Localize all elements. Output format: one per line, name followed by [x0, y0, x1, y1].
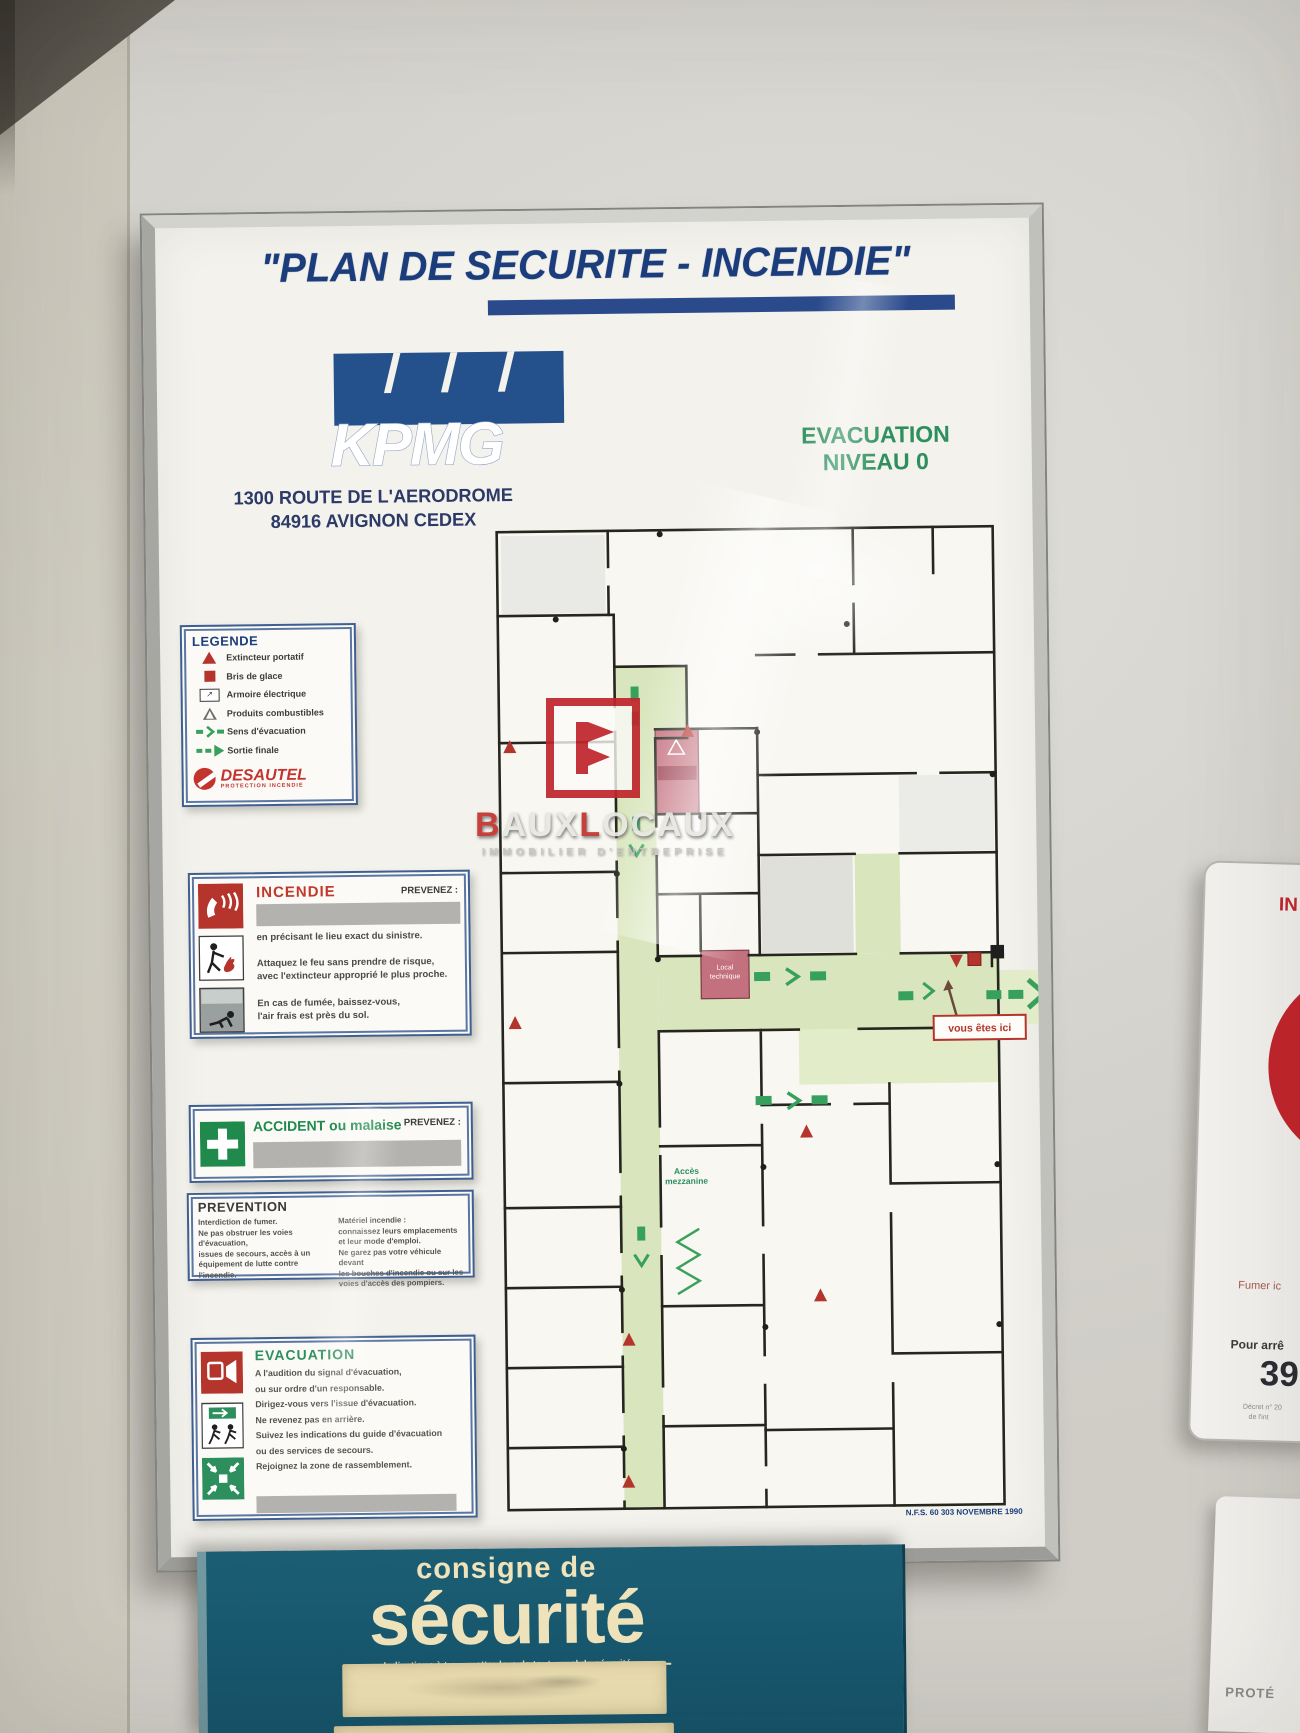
mezzanine-label-2: mezzanine — [665, 1176, 708, 1187]
phone-number-redaction — [256, 902, 460, 926]
prevention-title: PREVENTION — [198, 1197, 466, 1215]
kpmg-address: 1300 ROUTE DE L'AERODROME 84916 AVIGNON … — [221, 483, 525, 535]
wall-left-panel — [0, 0, 130, 1733]
evacuation-level-line1: EVACUATION — [785, 421, 965, 450]
consigne-field — [342, 1661, 667, 1717]
board-surface: "PLAN DE SECURITE - INCENDIE" KPMG 1300 … — [155, 218, 1045, 1558]
no-smoking-small1: Décret n° 20 — [1243, 1404, 1282, 1412]
evacuation-title: EVACUATION — [255, 1346, 356, 1363]
no-smoking-small2: de l'int — [1248, 1414, 1268, 1422]
prevenez-label: PREVENEZ : — [404, 1117, 461, 1129]
accident-title: ACCIDENT ou malaise — [253, 1116, 402, 1134]
incendie-line: Attaquez le feu sans prendre de risque, — [257, 956, 435, 969]
floor-plan: Local technique Accès mezzanine — [493, 522, 1045, 1517]
legend-item: Produits combustibles — [193, 702, 355, 722]
kpmg-logo: KPMG — [323, 349, 565, 480]
assembly-zone-redaction — [256, 1494, 456, 1513]
fight-fire-icon — [199, 935, 245, 981]
title-underline — [488, 295, 955, 316]
norm-reference: N.F.S. 60 303 NOVEMBRE 1990 — [811, 1507, 1023, 1519]
legend-item: Extincteur portatif — [192, 647, 354, 667]
local-room-label-2: technique — [710, 973, 741, 980]
exit-runners-icon — [201, 1402, 244, 1449]
phone-number-redaction — [253, 1140, 461, 1169]
bauxlocaux-logo-icon — [546, 698, 640, 798]
prevention-right-column: Matériel incendie : connaissez leurs emp… — [338, 1215, 467, 1290]
legend-item: Sens d'évacuation — [193, 721, 355, 741]
bottom-right-panel-text: PROTÉ — [1225, 1684, 1275, 1701]
electrical-cabinet-icon: ↗ — [193, 688, 227, 701]
wall-edge-shadow — [0, 0, 15, 195]
incendie-line: en précisant le lieu exact du sinistre. — [257, 930, 423, 943]
legend-box: LEGENDE Extincteur portatif Bris de glac… — [180, 623, 358, 807]
incendie-title: INCENDIE — [256, 883, 336, 901]
incendie-line: avec l'extincteur approprié le plus proc… — [257, 969, 447, 982]
evacuation-box: EVACUATION A l'audition du signal d'évac… — [190, 1335, 477, 1521]
no-smoking-number: 39 — [1259, 1354, 1299, 1395]
no-smoking-sign: IN Fumer ic Pour arrê 39 Décret n° 20 de… — [1188, 860, 1300, 1443]
break-glass-icon — [192, 671, 226, 682]
no-smoking-line1: Fumer ic — [1238, 1279, 1281, 1292]
kpmg-address-line2: 84916 AVIGNON CEDEX — [221, 507, 525, 535]
mezzanine-label-1: Accès — [674, 1166, 699, 1176]
desautel-logo: DESAUTEL PROTECTION INCENDIE — [194, 766, 356, 790]
extinguisher-icon — [192, 652, 226, 664]
legend-item: Bris de glace — [192, 665, 354, 685]
fire-phone-icon — [198, 883, 244, 929]
consigne-field — [334, 1723, 675, 1733]
evacuation-instructions: A l'audition du signal d'évacuation, ou … — [255, 1364, 468, 1475]
kpmg-logo-text: KPMG — [330, 410, 503, 479]
combustibles-icon — [193, 707, 227, 719]
prevention-box: PREVENTION Interdiction de fumer. Ne pas… — [187, 1190, 475, 1281]
legend-item: ↗ Armoire électrique — [193, 684, 355, 704]
evacuation-icons — [201, 1351, 245, 1500]
final-exit-icon — [193, 744, 227, 756]
consigne-line2: sécurité — [206, 1582, 807, 1654]
alarm-icon — [201, 1351, 244, 1394]
watermark-tagline: IMMOBILIER D'ENTREPRISE — [440, 846, 770, 858]
fire-safety-board: "PLAN DE SECURITE - INCENDIE" KPMG 1300 … — [142, 205, 1058, 1571]
no-smoking-line2: Pour arrê — [1230, 1337, 1284, 1352]
smoke-crawl-icon — [199, 987, 245, 1033]
you-are-here-label: vous êtes ici — [948, 1022, 1011, 1035]
consigne-content: consigne de sécurité Indications à trans… — [206, 1545, 807, 1673]
incendie-box: INCENDIE PREVENEZ : en précisant le lieu… — [188, 870, 472, 1039]
photo-scene: "PLAN DE SECURITE - INCENDIE" KPMG 1300 … — [0, 0, 1300, 1733]
consigne-securite-sign: consigne de sécurité Indications à trans… — [197, 1544, 907, 1733]
desautel-brand: DESAUTEL — [221, 767, 307, 783]
watermark-brand: BAUXLOCAUX — [440, 806, 770, 845]
bottom-right-panel: PROTÉ — [1208, 1496, 1300, 1733]
evacuation-direction-icon — [193, 726, 227, 738]
desautel-brand-sub: PROTECTION INCENDIE — [221, 782, 307, 789]
bauxlocaux-watermark: BAUXLOCAUX IMMOBILIER D'ENTREPRISE — [440, 690, 770, 885]
evacuation-level-label: EVACUATION NIVEAU 0 — [785, 421, 966, 477]
accident-box: ACCIDENT ou malaise PREVENEZ : — [189, 1102, 474, 1183]
incendie-line: En cas de fumée, baissez-vous, — [257, 996, 400, 1009]
first-aid-cross-icon — [200, 1121, 246, 1167]
break-glass-marker — [968, 952, 981, 965]
evacuation-level-line2: NIVEAU 0 — [786, 448, 966, 477]
legend-item: Sortie finale — [193, 739, 355, 759]
incendie-icons — [198, 883, 245, 1033]
local-room-label-1: Local — [717, 964, 734, 971]
assembly-point-icon — [202, 1457, 245, 1500]
board-title: "PLAN DE SECURITE - INCENDIE" — [197, 236, 974, 292]
desautel-flame-icon — [194, 768, 216, 790]
no-smoking-title: IN — [1279, 894, 1299, 917]
prevenez-label: PREVENEZ : — [401, 885, 458, 897]
incendie-line: l'air frais est près du sol. — [257, 1010, 369, 1022]
prevention-left-column: Interdiction de fumer. Ne pas obstruer l… — [198, 1216, 327, 1291]
kpmg-address-line1: 1300 ROUTE DE L'AERODROME — [221, 483, 525, 511]
no-smoking-circle-icon — [1236, 933, 1300, 1235]
